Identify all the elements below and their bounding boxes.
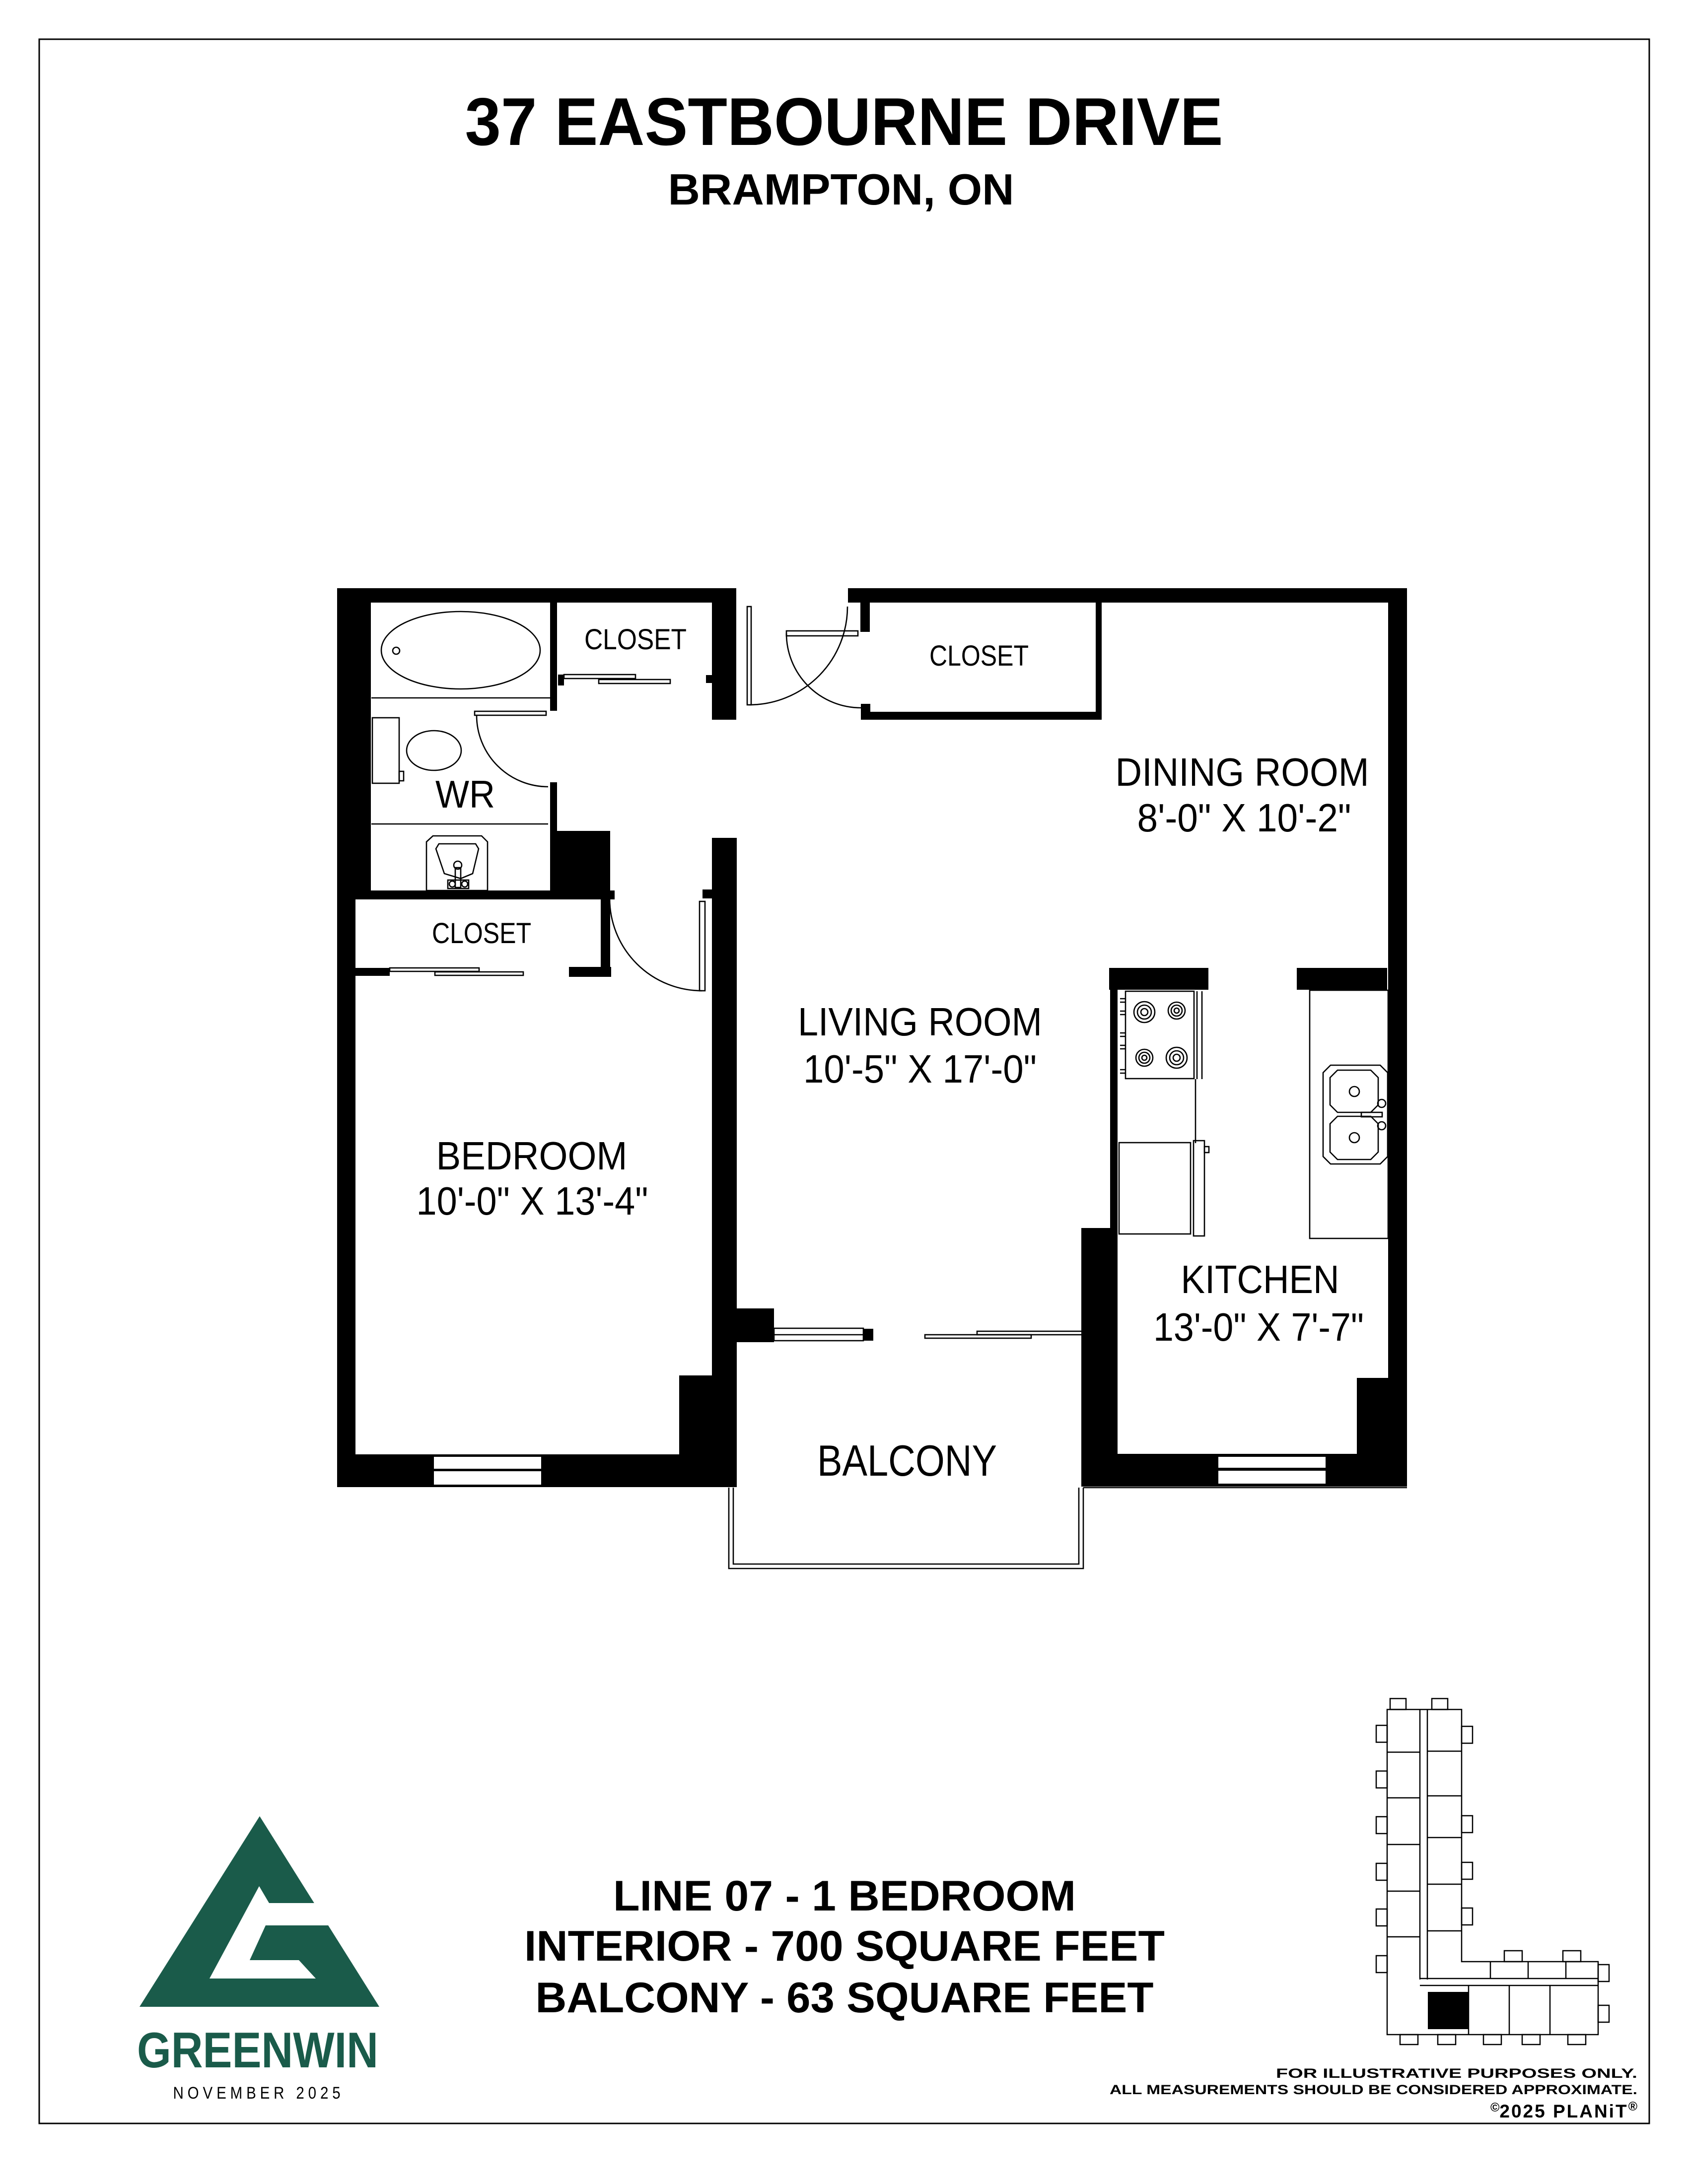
svg-text:WR: WR bbox=[435, 772, 495, 816]
svg-text:8'-0" X 10'-2": 8'-0" X 10'-2" bbox=[1137, 796, 1351, 840]
svg-text:BALCONY - 63 SQUARE FEET: BALCONY - 63 SQUARE FEET bbox=[536, 1974, 1154, 2022]
svg-text:GREENWIN: GREENWIN bbox=[137, 2023, 378, 2078]
svg-text:CLOSET: CLOSET bbox=[929, 640, 1029, 672]
svg-text:KITCHEN: KITCHEN bbox=[1181, 1257, 1339, 1301]
svg-text:ALL MEASUREMENTS SHOULD BE CON: ALL MEASUREMENTS SHOULD BE CONSIDERED AP… bbox=[1110, 2082, 1637, 2097]
svg-text:LINE 07 - 1 BEDROOM: LINE 07 - 1 BEDROOM bbox=[613, 1872, 1076, 1920]
svg-text:BRAMPTON, ON: BRAMPTON, ON bbox=[668, 165, 1014, 214]
svg-text:NOVEMBER 2025: NOVEMBER 2025 bbox=[173, 2084, 345, 2103]
svg-text:BEDROOM: BEDROOM bbox=[436, 1134, 628, 1178]
svg-text:10'-5" X 17'-0": 10'-5" X 17'-0" bbox=[803, 1047, 1037, 1091]
svg-text:BALCONY: BALCONY bbox=[817, 1436, 997, 1485]
svg-text:INTERIOR - 700 SQUARE FEET: INTERIOR - 700 SQUARE FEET bbox=[524, 1922, 1165, 1970]
svg-text:CLOSET: CLOSET bbox=[584, 623, 687, 656]
svg-text:CLOSET: CLOSET bbox=[432, 917, 531, 950]
svg-text:LIVING ROOM: LIVING ROOM bbox=[798, 1000, 1042, 1044]
svg-text:DINING ROOM: DINING ROOM bbox=[1116, 750, 1369, 794]
svg-text:10'-0" X 13'-4": 10'-0" X 13'-4" bbox=[417, 1179, 648, 1223]
svg-text:13'-0" X 7'-7": 13'-0" X 7'-7" bbox=[1153, 1305, 1364, 1349]
svg-text:37 EASTBOURNE DRIVE: 37 EASTBOURNE DRIVE bbox=[465, 84, 1223, 159]
svg-text:©2025 PLANiT®: ©2025 PLANiT® bbox=[1490, 2100, 1638, 2121]
svg-text:FOR ILLUSTRATIVE PURPOSES ONLY: FOR ILLUSTRATIVE PURPOSES ONLY. bbox=[1276, 2066, 1637, 2081]
